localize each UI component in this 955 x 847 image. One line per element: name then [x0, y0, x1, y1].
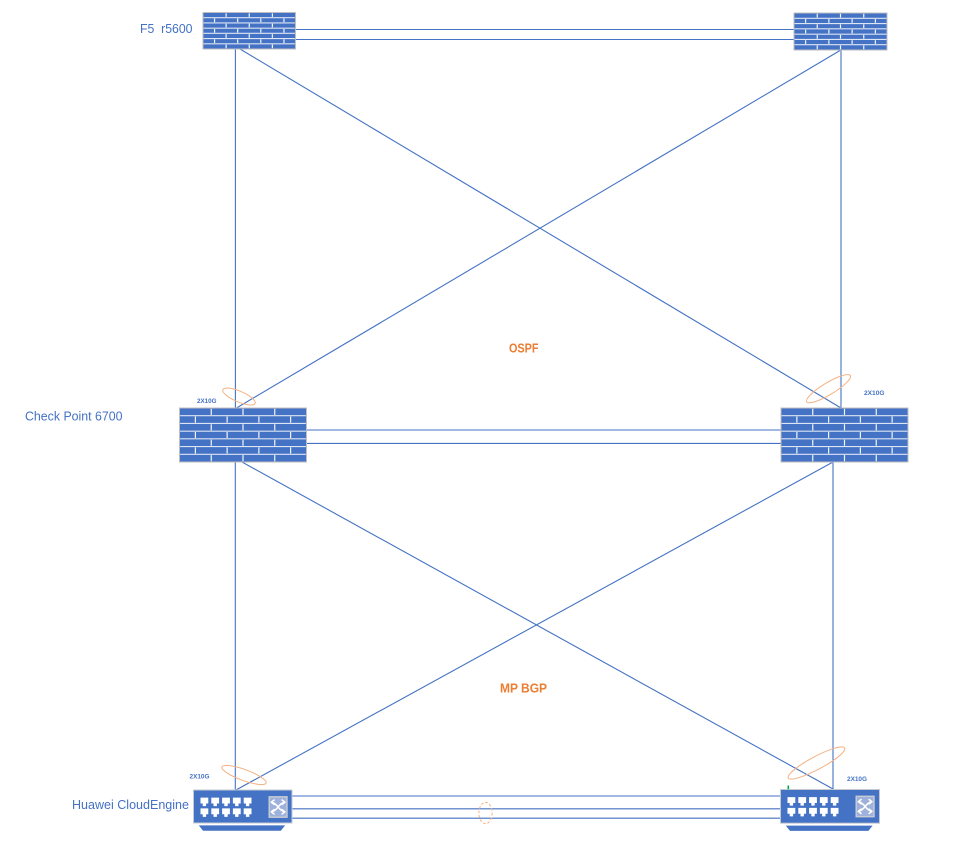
svg-text:Check Point 6700: Check Point 6700: [25, 408, 123, 423]
svg-text:2X10G: 2X10G: [864, 390, 885, 397]
svg-text:2X10G: 2X10G: [847, 776, 867, 783]
svg-text:2X10G: 2X10G: [197, 398, 217, 405]
svg-text:MP BGP: MP BGP: [500, 680, 547, 695]
svg-text:2X10G: 2X10G: [190, 774, 210, 781]
svg-text:OSPF: OSPF: [509, 340, 539, 355]
svg-text:Huawei CloudEngine: Huawei CloudEngine: [72, 797, 189, 812]
svg-text:F5 r5600: F5 r5600: [140, 21, 193, 36]
